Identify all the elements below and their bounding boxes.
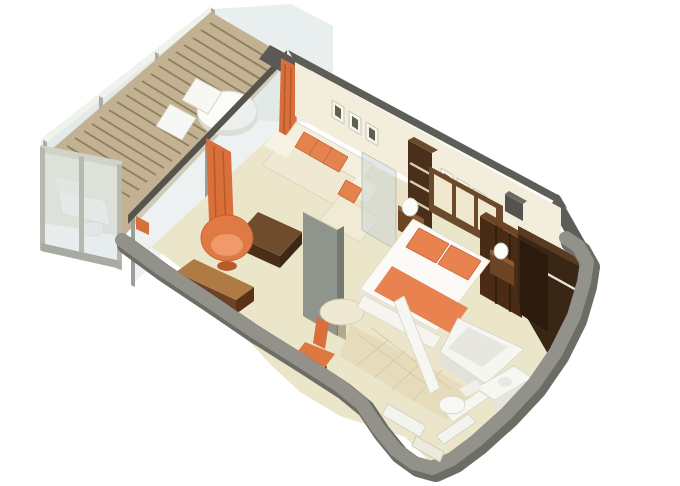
bay-post	[79, 156, 84, 260]
table-lamp	[402, 198, 418, 216]
dining-table-top	[320, 299, 364, 325]
suite-floorplan-rendering	[0, 0, 680, 486]
tub-chair-seat	[211, 234, 243, 256]
sink-bowl	[498, 377, 512, 387]
bay-post	[117, 164, 122, 270]
curtain-fold	[284, 64, 285, 136]
tub-chair-base	[217, 261, 237, 271]
bay-post	[40, 147, 45, 252]
floorplan-svg	[0, 0, 680, 486]
toilet	[439, 396, 465, 414]
table-lamp	[494, 243, 508, 259]
